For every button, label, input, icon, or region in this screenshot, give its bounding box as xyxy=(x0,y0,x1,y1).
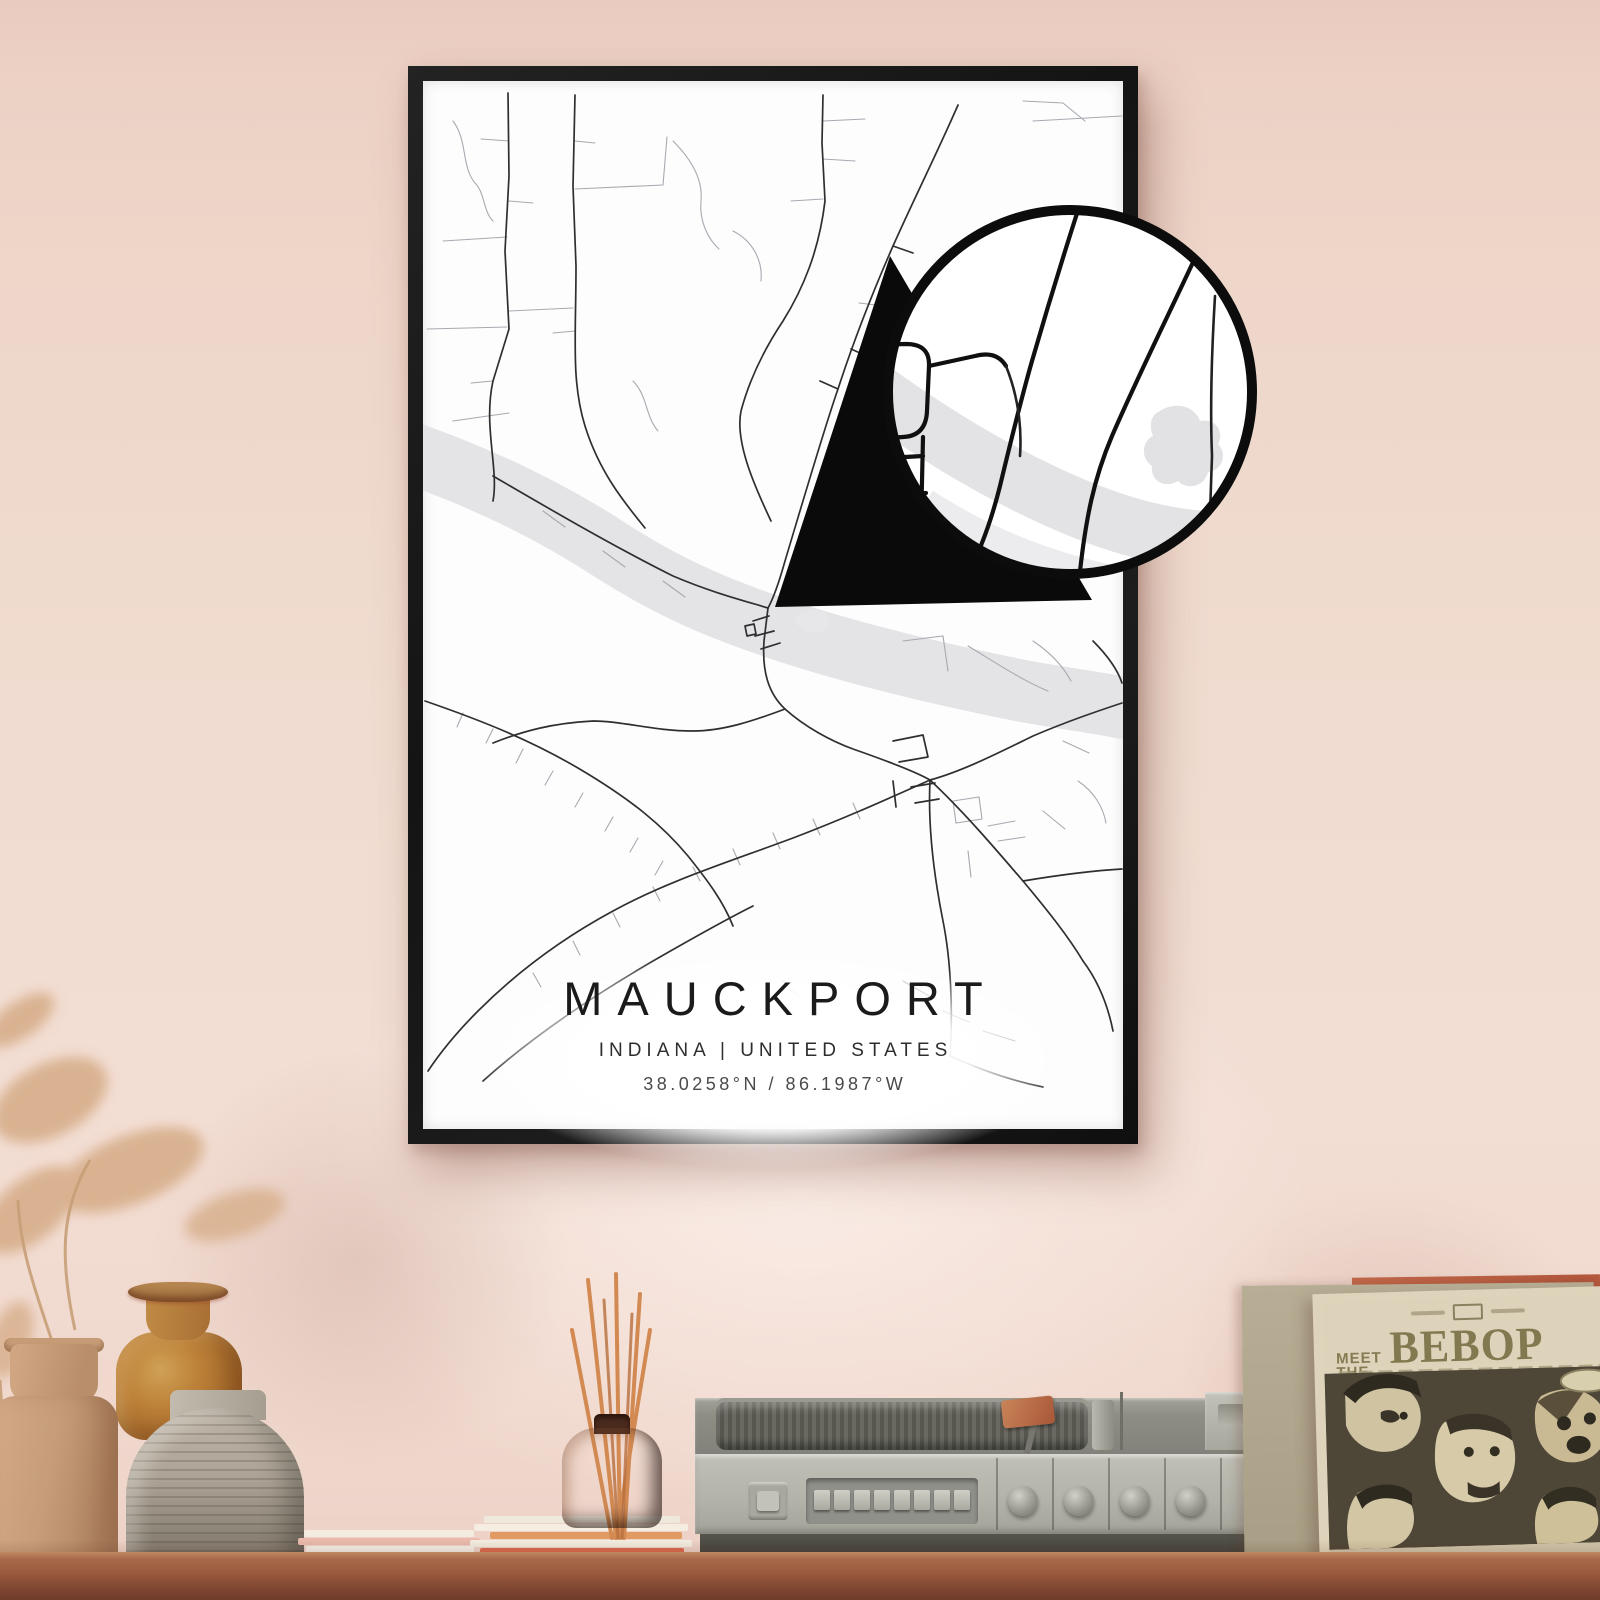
preset-button-row xyxy=(806,1478,978,1524)
amber-vase-rim xyxy=(128,1282,228,1302)
poster-title-block: MAUCKPORT INDIANA | UNITED STATES 38.025… xyxy=(423,971,1123,1095)
tonearm-cartridge xyxy=(1001,1395,1056,1428)
knob-3 xyxy=(1120,1486,1150,1516)
tonearm-post xyxy=(1092,1400,1114,1450)
region-label: INDIANA | UNITED STATES xyxy=(423,1040,1123,1062)
sleeve-header: MEET THE BEBOP xyxy=(1323,1294,1600,1368)
panel-divider xyxy=(1164,1458,1166,1530)
panel-divider xyxy=(1052,1458,1054,1530)
power-button xyxy=(748,1482,788,1520)
antenna xyxy=(1120,1392,1123,1450)
knob-1 xyxy=(1008,1486,1038,1516)
wooden-sideboard xyxy=(0,1552,1600,1600)
album-artwork xyxy=(1325,1366,1600,1550)
panel-divider xyxy=(1108,1458,1110,1530)
city-name: MAUCKPORT xyxy=(423,971,1123,1026)
knob-4 xyxy=(1176,1486,1206,1516)
tan-vase-neck xyxy=(10,1344,98,1402)
panel-divider xyxy=(1220,1458,1222,1530)
room-scene: MAUCKPORT INDIANA | UNITED STATES 38.025… xyxy=(0,0,1600,1600)
diffuser-bottle xyxy=(562,1428,662,1528)
knob-2 xyxy=(1064,1486,1094,1516)
zoom-detail-lens xyxy=(760,196,1266,620)
coordinates-label: 38.0258°N / 86.1987°W xyxy=(423,1074,1123,1095)
panel-divider xyxy=(996,1458,998,1530)
record-sleeve-front: MEET THE BEBOP xyxy=(1312,1286,1600,1562)
